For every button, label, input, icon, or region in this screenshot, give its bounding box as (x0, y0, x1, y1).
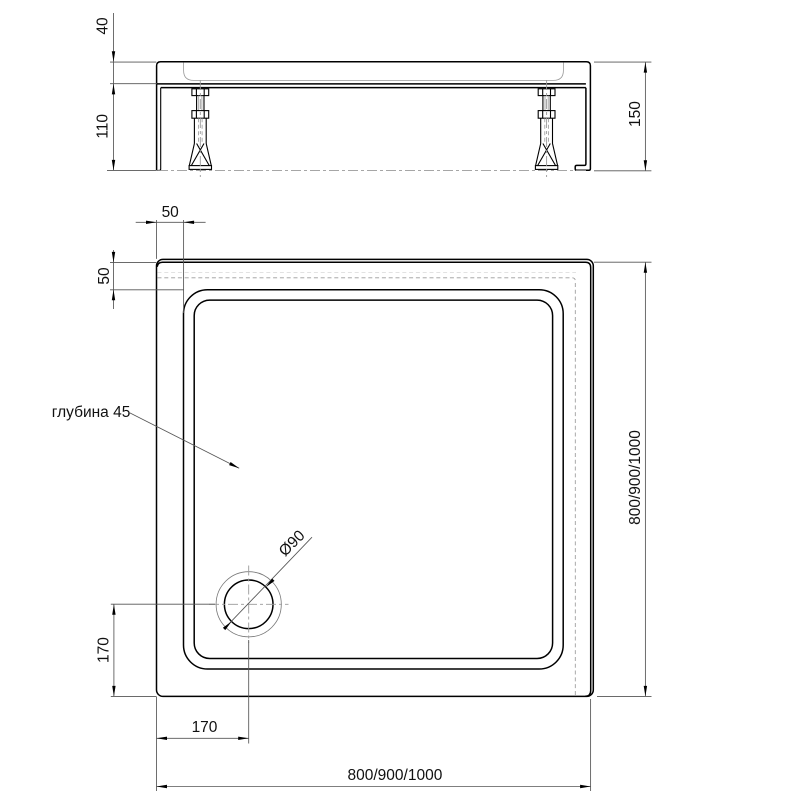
svg-text:170: 170 (96, 637, 113, 663)
svg-text:150: 150 (627, 101, 644, 127)
svg-text:110: 110 (95, 114, 112, 139)
svg-text:40: 40 (95, 17, 112, 35)
svg-text:50: 50 (96, 267, 113, 285)
svg-text:Ø90: Ø90 (276, 527, 309, 560)
svg-text:50: 50 (162, 204, 180, 221)
svg-text:170: 170 (192, 719, 218, 736)
svg-text:800/900/1000: 800/900/1000 (348, 767, 443, 784)
svg-text:глубина 45: глубина 45 (52, 404, 131, 421)
svg-text:800/900/1000: 800/900/1000 (627, 430, 644, 525)
